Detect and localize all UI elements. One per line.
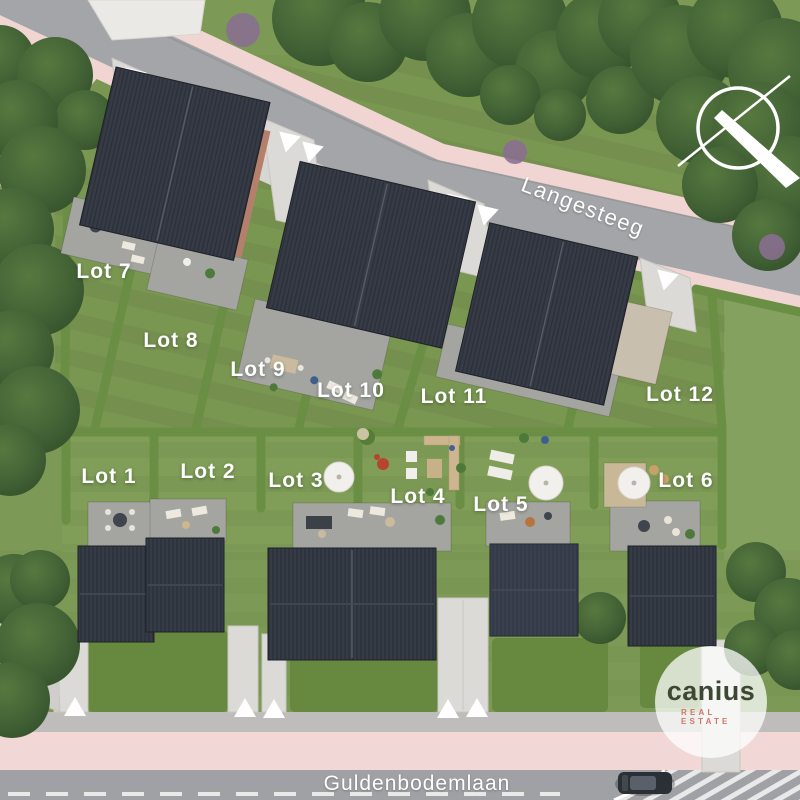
lot-label-5[interactable]: Lot 5 [473, 493, 528, 517]
house-lot-3 [268, 503, 451, 660]
lot-label-12[interactable]: Lot 12 [646, 383, 714, 407]
lot-label-2[interactable]: Lot 2 [180, 460, 235, 484]
brand-name: canius [667, 678, 756, 705]
street-label-guldenbodemlaan: Guldenbodemlaan [324, 772, 511, 796]
lot-label-3[interactable]: Lot 3 [268, 469, 323, 493]
lot-label-1[interactable]: Lot 1 [81, 465, 136, 489]
parked-car [615, 772, 675, 796]
lot-label-8[interactable]: Lot 8 [143, 329, 198, 353]
lot-label-9[interactable]: Lot 9 [230, 358, 285, 382]
lot-label-4[interactable]: Lot 4 [390, 485, 445, 509]
brand-tagline: REAL ESTATE [681, 708, 767, 726]
parasol-lot-6 [618, 467, 650, 499]
lot-label-10[interactable]: Lot 10 [317, 379, 385, 403]
parasol-lot-3 [324, 462, 354, 492]
lot-label-11[interactable]: Lot 11 [421, 385, 488, 409]
house-lot-2 [146, 499, 226, 632]
site-plan: Lot 1 Lot 2 Lot 3 Lot 4 Lot 5 Lot 6 Lot … [0, 0, 800, 800]
compass-north-icon [668, 60, 800, 200]
brand-logo: canius REAL ESTATE [655, 646, 767, 758]
parasol-lot-5 [529, 466, 563, 500]
lot-label-7[interactable]: Lot 7 [76, 260, 131, 284]
lot-label-6[interactable]: Lot 6 [658, 469, 713, 493]
house-lot-5 [486, 502, 578, 636]
